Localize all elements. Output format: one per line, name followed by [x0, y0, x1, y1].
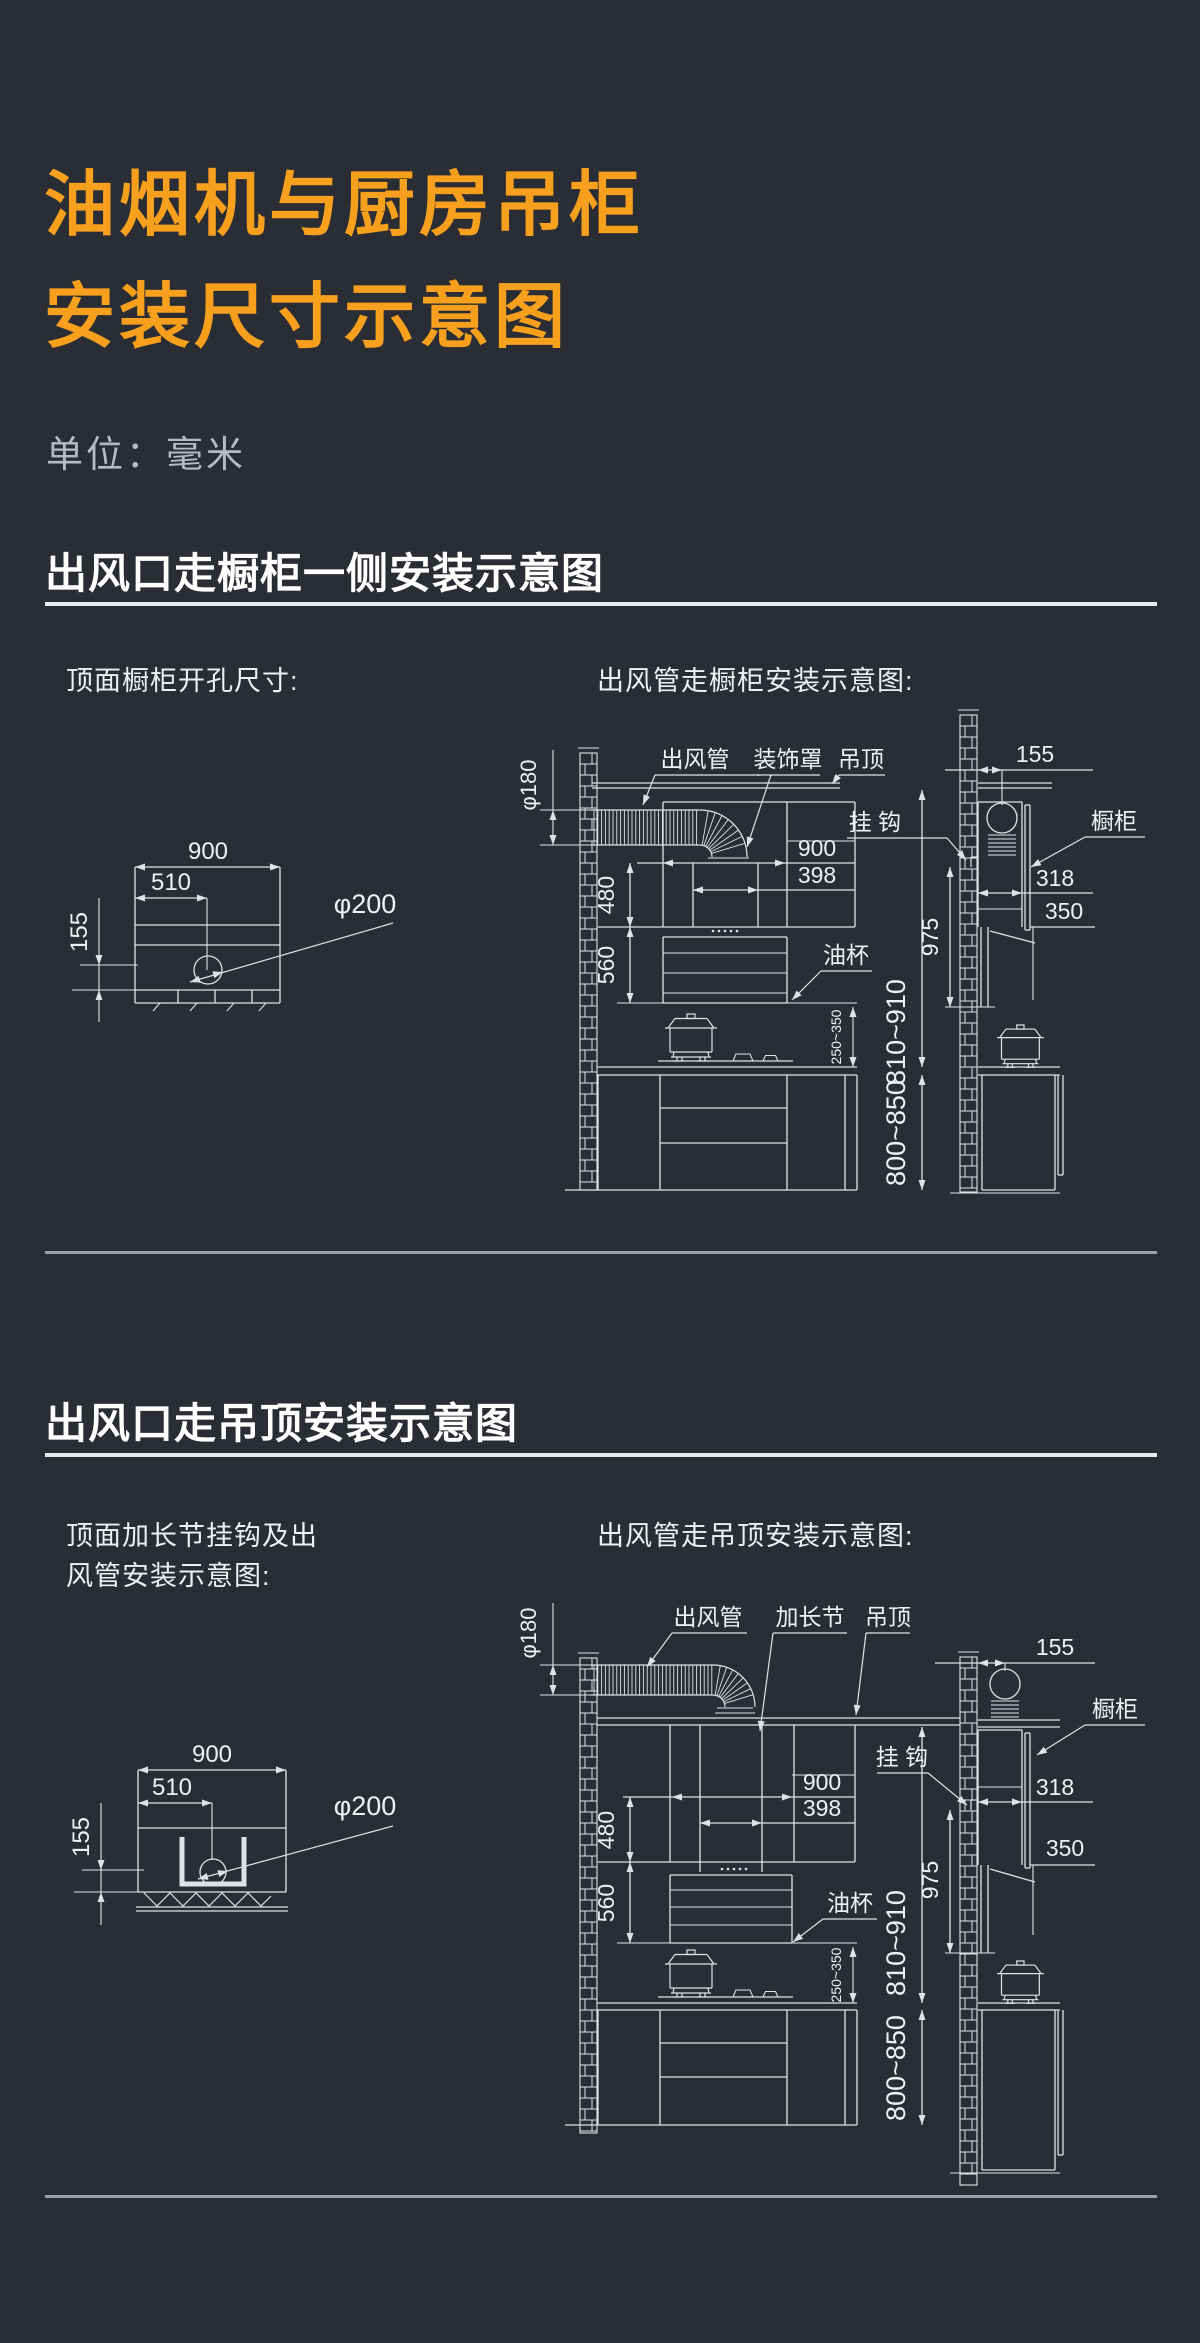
top-view-diagram-cabinet-opening: 900510155φ200 [60, 810, 400, 1055]
duct-cross-section [987, 803, 1017, 855]
section-2-underline [45, 1453, 1157, 1457]
pot-side [997, 1961, 1044, 2003]
text-duct_diameter: φ180 [516, 760, 541, 811]
exhaust-duct [591, 810, 751, 863]
section-2-left-caption: 顶面加长节挂钩及出 风管安装示意图: [66, 1516, 318, 1596]
text-hang_height: 975 [917, 918, 943, 956]
ceiling-line [597, 1718, 960, 1725]
text-pot_clearance_range: 250~350 [828, 1009, 844, 1064]
elevation-side-view: 155318350橱柜 [935, 1634, 1145, 2185]
section-2-heading: 出风口走吊顶安装示意图 [45, 1390, 518, 1451]
dimension-lines: 900510155 [68, 1741, 286, 1925]
top-view-diagram-extension-hook: 900510155φ200 [60, 1700, 400, 1990]
base-cabinet-side [950, 2010, 1063, 2173]
text-hole_diameter: φ200 [334, 889, 397, 919]
elevation-side-view: 155318350橱柜 [945, 710, 1145, 1193]
text-ceiling: 吊顶 [865, 1604, 911, 1630]
text-base_cabinet_range: 800~850 [881, 2015, 911, 2121]
text-duct: 出风管 [661, 746, 730, 772]
caption-line: 风管安装示意图: [66, 1556, 318, 1596]
ceiling-line-side [978, 783, 1052, 788]
section-2-right-caption: 出风管走吊顶安装示意图: [597, 1516, 914, 1556]
pot-side [997, 1025, 1044, 1067]
text-edge_offset: 155 [68, 1817, 95, 1857]
elevation-diagram-duct-through-cabinet: φ180900398480560250~350810~910800~850975… [495, 695, 1180, 1210]
text-base_cabinet_range: 800~850 [881, 1080, 911, 1186]
text-cabinet: 橱柜 [1091, 808, 1137, 834]
text-connector: 加长节 [776, 1604, 845, 1630]
text-cabinet: 橱柜 [1092, 1696, 1138, 1722]
text-oil_cup: 油杯 [827, 1890, 873, 1916]
text-duct: 出风管 [674, 1604, 743, 1630]
text-hood_to_counter_range: 810~910 [881, 1890, 911, 1996]
cabinet-opening-plan: 900510155φ200 [66, 838, 396, 1022]
hole-diameter-callout: φ200 [189, 889, 396, 985]
text-cabinet_depth: 318 [1036, 865, 1074, 891]
text-cabinet_clearance: 350 [1045, 898, 1083, 924]
caption-line: 顶面橱柜开孔尺寸: [66, 661, 299, 701]
unit-label: 单位：毫米 [46, 424, 246, 478]
base-cabinet [565, 2010, 857, 2125]
text-hang_height: 975 [917, 1861, 943, 1899]
countertop-side [978, 2003, 1060, 2010]
text-hole_diameter: φ200 [334, 1791, 397, 1821]
text-connector: 装饰罩 [754, 746, 823, 772]
text-hood_section_height: 560 [593, 1884, 619, 1922]
wall-cabinet-side [978, 1730, 1030, 1868]
text-hood_to_counter_range: 810~910 [881, 979, 911, 1085]
text-cabinet_clearance: 350 [1046, 1835, 1084, 1861]
text-oil_cup: 油杯 [823, 942, 869, 968]
caption-line: 顶面加长节挂钩及出 [66, 1516, 318, 1556]
page-title: 油烟机与厨房吊柜 安装尺寸示意图 [44, 150, 644, 374]
countertop [597, 2003, 857, 2010]
ceiling-line [592, 783, 840, 788]
section-1-underline [45, 602, 1157, 606]
text-chimney_width: 398 [803, 1795, 841, 1821]
text-cabinet_depth: 318 [1036, 1774, 1074, 1800]
text-hole_offset: 510 [152, 1774, 192, 1801]
section-1-heading: 出风口走橱柜一侧安装示意图 [45, 540, 604, 601]
countertop-side [978, 1067, 1060, 1075]
page-title-line2: 安装尺寸示意图 [44, 262, 644, 374]
duct-cross-section [990, 1669, 1020, 1717]
ceiling-line-side [978, 1720, 1060, 1727]
text-hook: 挂 钩 [876, 1744, 928, 1770]
elevation-main-view: φ180900398480560250~350810~910800~850975… [516, 746, 969, 1190]
dimension-lines-side: 155318350 [945, 741, 1095, 1000]
elevation-main-view: φ180900398480560250~350810~910800~850975… [516, 1603, 969, 2133]
text-hook: 挂 钩 [849, 809, 901, 835]
text-ceiling: 吊顶 [838, 746, 884, 772]
dimension-lines: φ180900398480560250~350810~910800~850975 [516, 1603, 954, 2125]
gas-stove [658, 1014, 793, 1061]
dimension-lines: 900510155 [66, 838, 280, 1022]
text-hood_section_height: 560 [593, 946, 619, 984]
dimension-lines-side: 155318350 [935, 1634, 1095, 1935]
text-wall_gap: 155 [1016, 741, 1054, 767]
page-title-line1: 油烟机与厨房吊柜 [44, 150, 644, 262]
text-upper_height: 480 [593, 1811, 619, 1849]
base-cabinet-side [950, 1075, 1063, 1193]
gas-stove [658, 1950, 793, 1997]
text-hood_width: 900 [803, 1769, 841, 1795]
base-cabinet [565, 1075, 857, 1190]
exhaust-duct [591, 1665, 755, 1713]
countertop [597, 1067, 857, 1075]
text-wall_gap: 155 [1036, 1634, 1074, 1660]
text-width: 900 [188, 838, 228, 865]
text-chimney_width: 398 [798, 862, 836, 888]
section-1-left-caption: 顶面橱柜开孔尺寸: [66, 661, 299, 701]
extension-hook-plan: 900510155φ200 [68, 1741, 396, 1925]
installation-infographic: 油烟机与厨房吊柜 安装尺寸示意图 单位：毫米 出风口走橱柜一侧安装示意图 顶面橱… [0, 0, 1200, 2343]
cabinet-label: 橱柜 [1029, 808, 1145, 870]
hole-diameter-callout: φ200 [197, 1791, 396, 1882]
elevation-diagram-duct-through-ceiling: φ180900398480560250~350810~910800~850975… [495, 1585, 1180, 2190]
text-duct_diameter: φ180 [516, 1608, 541, 1659]
text-edge_offset: 155 [66, 912, 93, 952]
text-width: 900 [192, 1741, 232, 1768]
text-upper_height: 480 [593, 876, 619, 914]
text-hole_offset: 510 [151, 869, 191, 896]
section-divider-1 [45, 1251, 1157, 1254]
wall-cabinet-side [978, 802, 1030, 930]
hook-bracket [182, 1837, 244, 1884]
text-hood_width: 900 [798, 835, 836, 861]
brick-wall-side [960, 1657, 977, 2185]
section-divider-2 [45, 2195, 1157, 2198]
text-pot_clearance_range: 250~350 [828, 1947, 844, 2002]
brick-wall-side [960, 715, 977, 1192]
